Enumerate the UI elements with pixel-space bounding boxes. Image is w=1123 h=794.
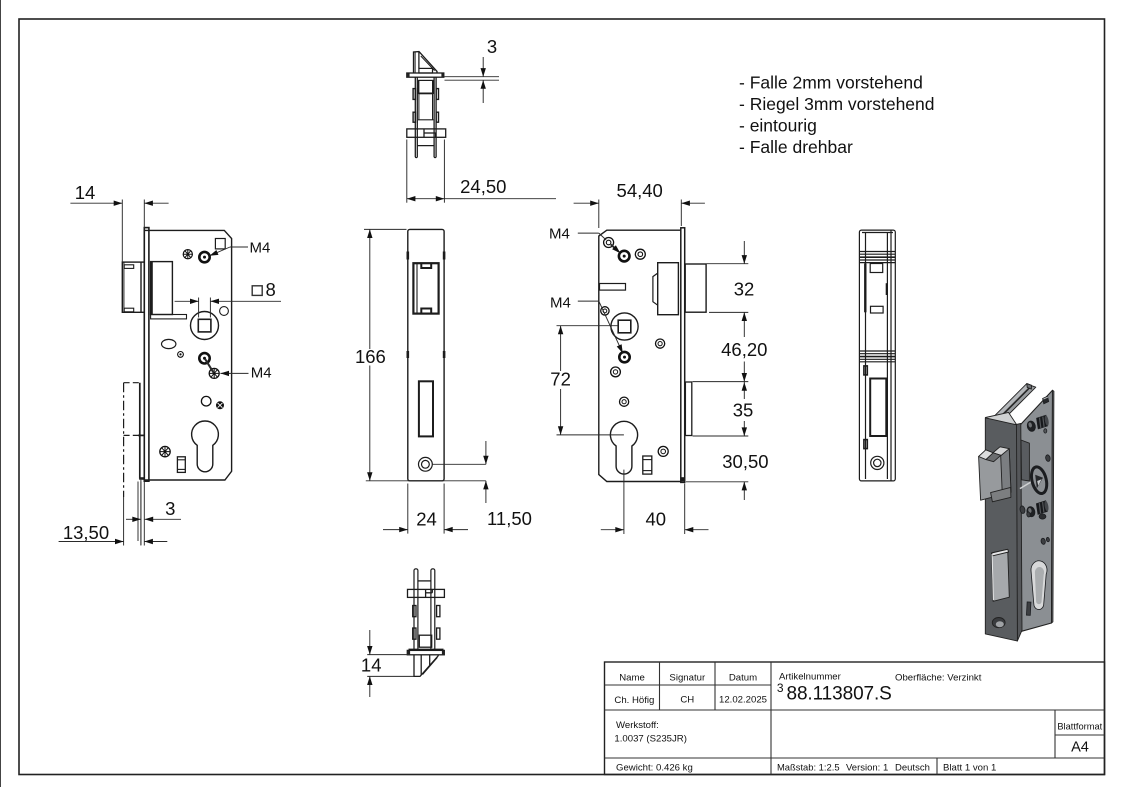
svg-text:46,20: 46,20 (721, 339, 767, 360)
svg-text:- Riegel 3mm vorstehend: - Riegel 3mm vorstehend (739, 94, 935, 114)
svg-text:3: 3 (777, 681, 784, 695)
svg-text:1.0037 (S235JR): 1.0037 (S235JR) (614, 734, 687, 745)
svg-text:Werkstoff:: Werkstoff: (616, 720, 659, 731)
svg-text:30,50: 30,50 (722, 451, 768, 472)
svg-text:Oberfläche: Verzinkt: Oberfläche: Verzinkt (895, 673, 982, 684)
svg-text:88.113807.S: 88.113807.S (787, 684, 892, 705)
svg-text:24: 24 (416, 509, 437, 530)
svg-text:- eintourig: - eintourig (739, 116, 817, 136)
svg-text:3: 3 (487, 36, 497, 57)
svg-text:Maßstab: 1:2.5: Maßstab: 1:2.5 (777, 762, 840, 773)
svg-text:8: 8 (266, 279, 276, 300)
svg-text:Deutsch: Deutsch (895, 763, 930, 774)
svg-text:CH: CH (680, 695, 694, 706)
svg-text:13,50: 13,50 (63, 522, 109, 543)
svg-text:35: 35 (733, 400, 754, 421)
svg-text:40: 40 (646, 509, 667, 530)
svg-text:3: 3 (165, 498, 175, 519)
svg-text:M4: M4 (549, 225, 570, 242)
svg-text:Version: 1: Version: 1 (846, 763, 888, 774)
svg-text:M4: M4 (251, 365, 272, 382)
svg-text:166: 166 (355, 346, 386, 367)
svg-text:72: 72 (550, 369, 571, 390)
svg-text:14: 14 (361, 655, 382, 676)
svg-text:- Falle drehbar: - Falle drehbar (739, 137, 853, 157)
svg-text:32: 32 (734, 278, 755, 299)
svg-text:Signatur: Signatur (669, 673, 706, 684)
svg-text:Ch. Höfig: Ch. Höfig (614, 695, 654, 706)
svg-text:24,50: 24,50 (460, 176, 506, 197)
svg-text:Blatt 1 von 1: Blatt 1 von 1 (943, 763, 996, 774)
svg-text:Name: Name (619, 673, 645, 684)
svg-text:Datum: Datum (729, 673, 757, 684)
svg-text:14: 14 (75, 182, 96, 203)
svg-text:M4: M4 (550, 294, 571, 311)
svg-text:A4: A4 (1071, 740, 1089, 756)
svg-text:Gewicht: 0.426 kg: Gewicht: 0.426 kg (616, 763, 693, 774)
svg-text:54,40: 54,40 (617, 180, 663, 201)
svg-text:11,50: 11,50 (487, 508, 532, 529)
svg-text:M4: M4 (250, 239, 271, 256)
svg-text:Blattformat: Blattformat (1057, 722, 1102, 732)
svg-text:Artikelnummer: Artikelnummer (779, 672, 842, 683)
svg-text:12.02.2025: 12.02.2025 (719, 695, 767, 706)
svg-text:- Falle 2mm vorstehend: - Falle 2mm vorstehend (739, 73, 923, 93)
